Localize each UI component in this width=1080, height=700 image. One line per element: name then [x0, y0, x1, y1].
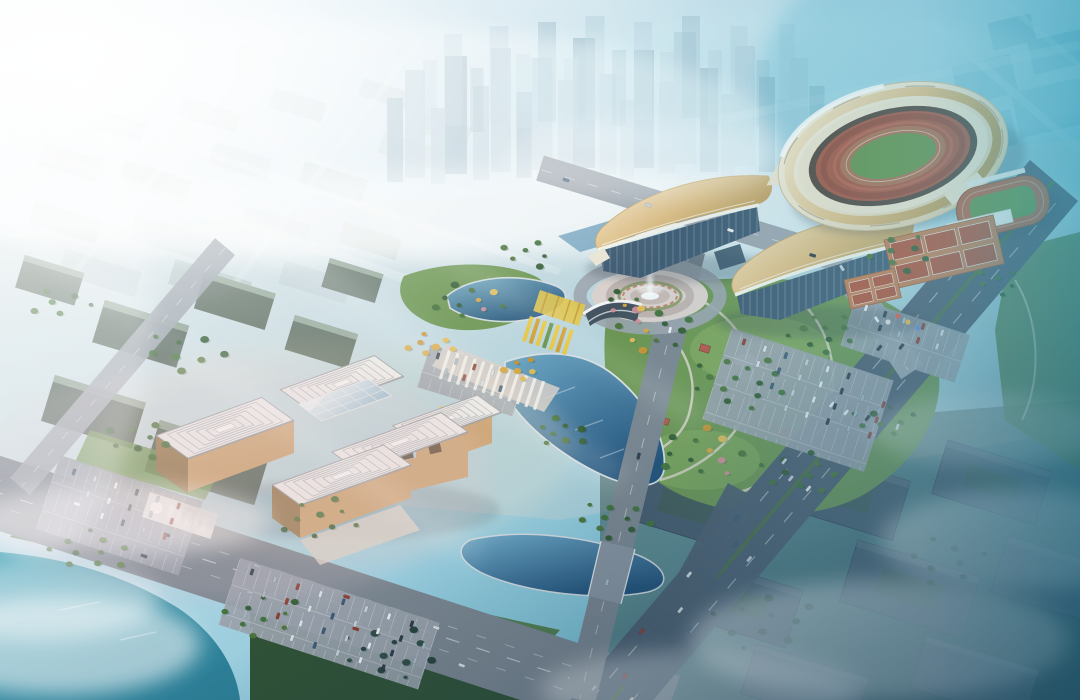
aerial-render-screenshot [0, 0, 1080, 700]
light-overlays [0, 0, 1080, 700]
scene-svg [0, 0, 1080, 700]
